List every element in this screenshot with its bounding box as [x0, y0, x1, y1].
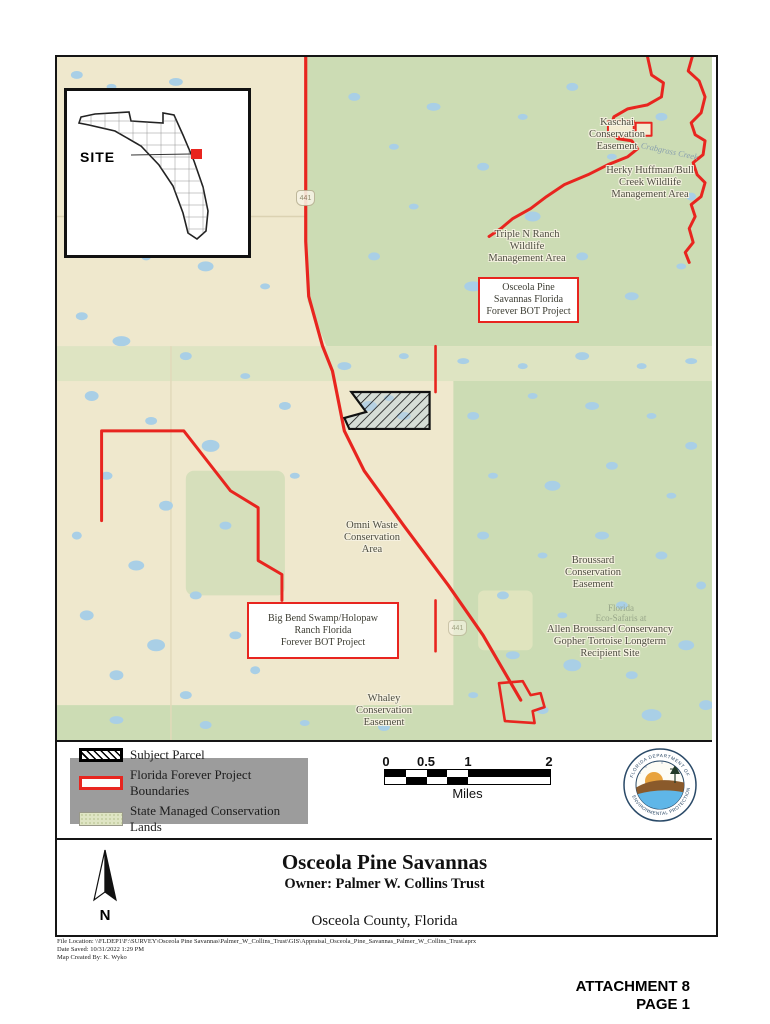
legend-box: Subject Parcel Florida Forever Project B… [70, 758, 308, 824]
scale-tick: 2 [545, 754, 552, 769]
map-document-page: 441 441 Kaschai Conservation Easement He… [0, 0, 770, 1024]
map-owner: Owner: Palmer W. Collins Trust [57, 876, 712, 893]
florida-forever-swatch [79, 776, 123, 790]
conservation-band-middle [57, 346, 712, 381]
label-triple-n-ranch: Triple N Ranch Wildlife Management Area [457, 229, 597, 265]
legend-label: Florida Forever Project Boundaries [130, 767, 308, 799]
scale-ticks: 0 0.5 1 2 [384, 754, 551, 769]
site-label: SITE [80, 149, 115, 165]
dep-seal: FLORIDA DEPARTMENT OF ENVIRONMENTAL PROT… [622, 747, 698, 823]
scale-tick: 0 [382, 754, 389, 769]
label-omni-waste: Omni Waste Conservation Area [312, 520, 432, 556]
legend-item-florida-forever: Florida Forever Project Boundaries [79, 767, 308, 799]
state-lands-swatch [79, 812, 123, 826]
label-herky-huffman: Herky Huffman/Bull Creek Wildlife Manage… [565, 165, 712, 201]
legend-item-state-lands: State Managed Conservation Lands [79, 803, 308, 835]
scale-tick: 1 [464, 754, 471, 769]
florida-inset-map: SITE [64, 88, 251, 258]
subject-parcel-swatch [79, 748, 123, 762]
us-441-shield: 441 [296, 190, 315, 206]
scale-bar: 0 0.5 1 2 Mil [384, 754, 551, 801]
attachment-page-marks: ATTACHMENT 8 PAGE 1 [576, 978, 690, 1014]
title-block: N Osceola Pine Savannas Owner: Palmer W.… [57, 838, 712, 935]
map-title: Osceola Pine Savannas [57, 850, 712, 875]
legend-item-subject-parcel: Subject Parcel [79, 747, 308, 763]
us-441-shield: 441 [448, 620, 467, 636]
florida-outline [67, 91, 248, 255]
label-box-big-bend-swamp: Big Bend Swamp/Holopaw Ranch Florida For… [247, 602, 399, 659]
route-number: 441 [300, 195, 312, 202]
map-county: Osceola County, Florida [57, 913, 712, 930]
file-info-footer: File Location: \\FLDEP1\F:\SURVEY\Osceol… [57, 938, 476, 962]
conservation-patch-west [186, 471, 285, 596]
legend-band: Subject Parcel Florida Forever Project B… [57, 740, 712, 838]
map-area: 441 441 Kaschai Conservation Easement He… [57, 57, 712, 740]
route-number: 441 [452, 625, 464, 632]
label-allen-broussard: Allen Broussard Conservancy Gopher Torto… [505, 624, 712, 660]
map-frame: 441 441 Kaschai Conservation Easement He… [55, 55, 718, 937]
label-broussard: Broussard Conservation Easement [538, 555, 648, 591]
page-number-label: PAGE 1 [576, 996, 690, 1014]
scale-unit: Miles [384, 786, 551, 801]
label-whaley: Whaley Conservation Easement [329, 693, 439, 729]
legend-label: State Managed Conservation Lands [130, 803, 308, 835]
attachment-label: ATTACHMENT 8 [576, 978, 690, 996]
label-eco-safaris: Florida Eco-Safaris at [571, 603, 671, 623]
label-box-osceola-pine-savannas: Osceola Pine Savannas Florida Forever BO… [478, 277, 579, 323]
site-marker [191, 149, 202, 159]
scale-tick: 0.5 [417, 754, 435, 769]
scale-bar-graphic [384, 769, 551, 785]
legend-label: Subject Parcel [130, 747, 205, 763]
